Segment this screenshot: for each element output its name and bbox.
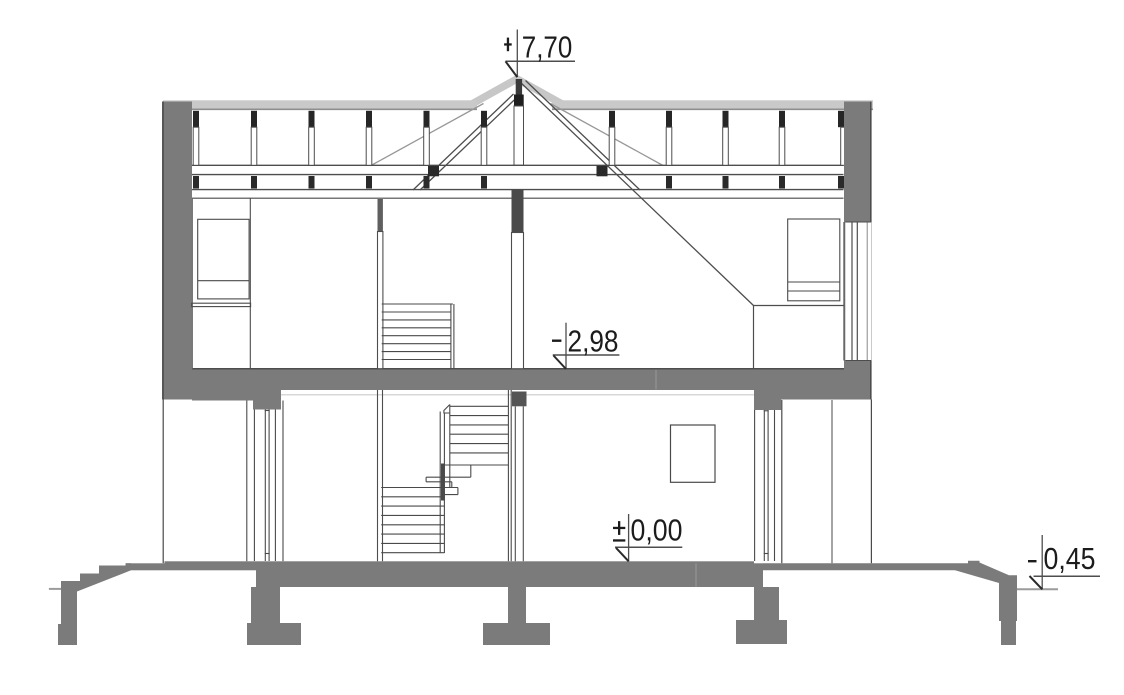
svg-text:2,98: 2,98 <box>568 323 619 358</box>
svg-text:0,00: 0,00 <box>631 513 683 548</box>
svg-text:0,45: 0,45 <box>1044 541 1096 576</box>
svg-text:7,70: 7,70 <box>522 29 573 64</box>
